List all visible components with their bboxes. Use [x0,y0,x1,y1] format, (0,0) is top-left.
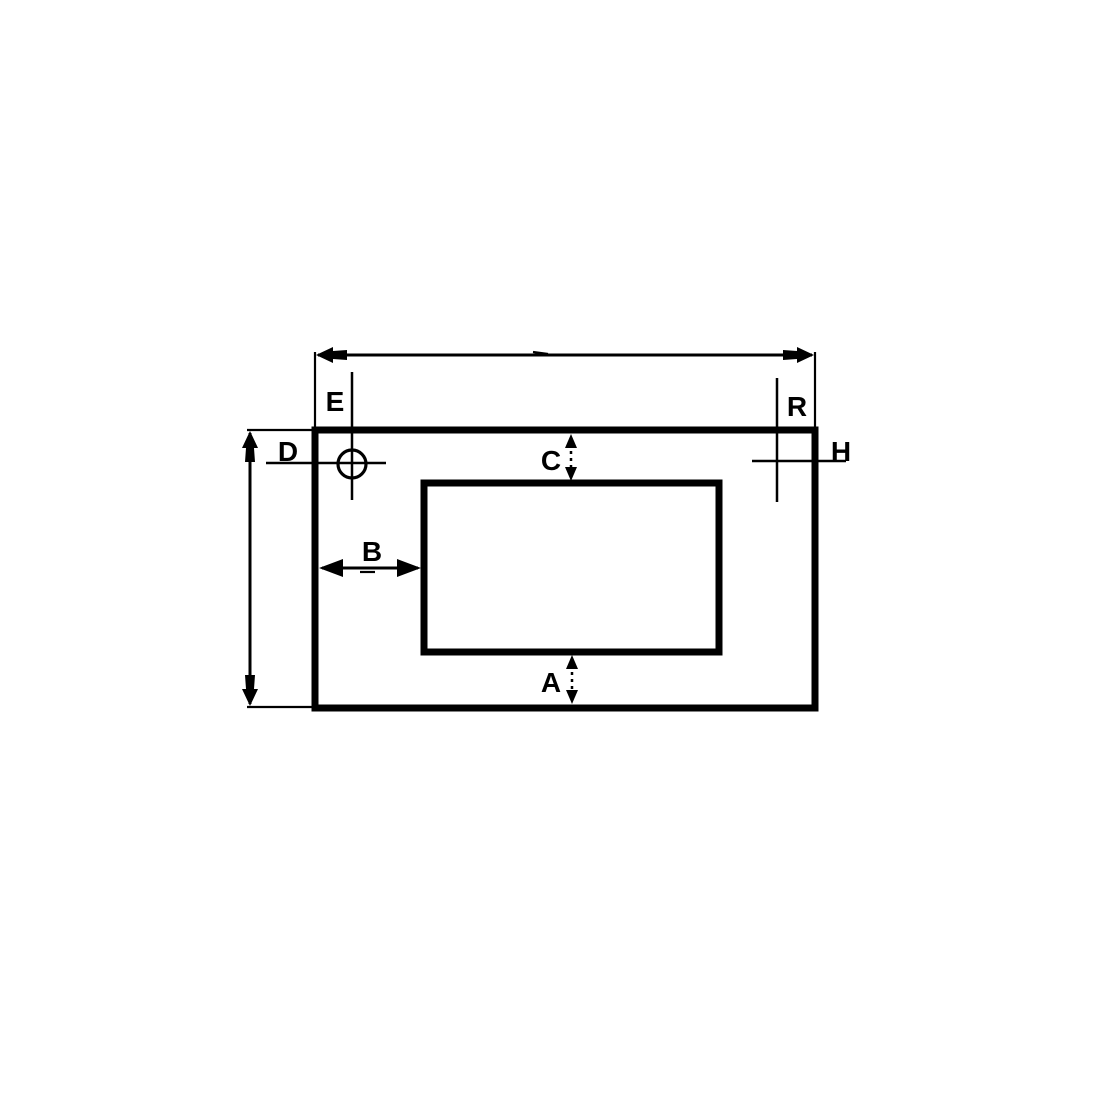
width-arrow-left-icon [316,347,347,363]
dim-c-arrow-down-icon [565,467,577,481]
dimension-c: C [541,434,577,481]
label-c: C [541,445,561,476]
panel-cutout-dimension-diagram: D E R H C A [0,0,1100,1100]
dimension-a: A [541,655,578,704]
dim-a-arrow-down-icon [566,690,578,704]
dim-a-arrow-up-icon [566,655,578,669]
drawing-canvas: D E R H C A [0,0,1100,1100]
height-arrow-up-icon [242,431,258,462]
label-a: A [541,667,561,698]
dimension-b: B [319,536,421,577]
label-b: B [362,536,382,567]
corner-crosshair: R H [752,378,851,502]
label-r: R [787,391,807,422]
label-e: E [326,386,345,417]
width-arrow-right-icon [783,347,814,363]
height-dimension: D [242,430,313,707]
width-dimension [315,347,815,427]
cutout-outline [424,483,719,652]
dim-b-arrow-right-icon [397,559,421,577]
dim-b-arrow-left-icon [319,559,343,577]
dim-c-arrow-up-icon [565,434,577,448]
label-h: H [831,436,851,467]
height-arrow-down-icon [242,675,258,706]
